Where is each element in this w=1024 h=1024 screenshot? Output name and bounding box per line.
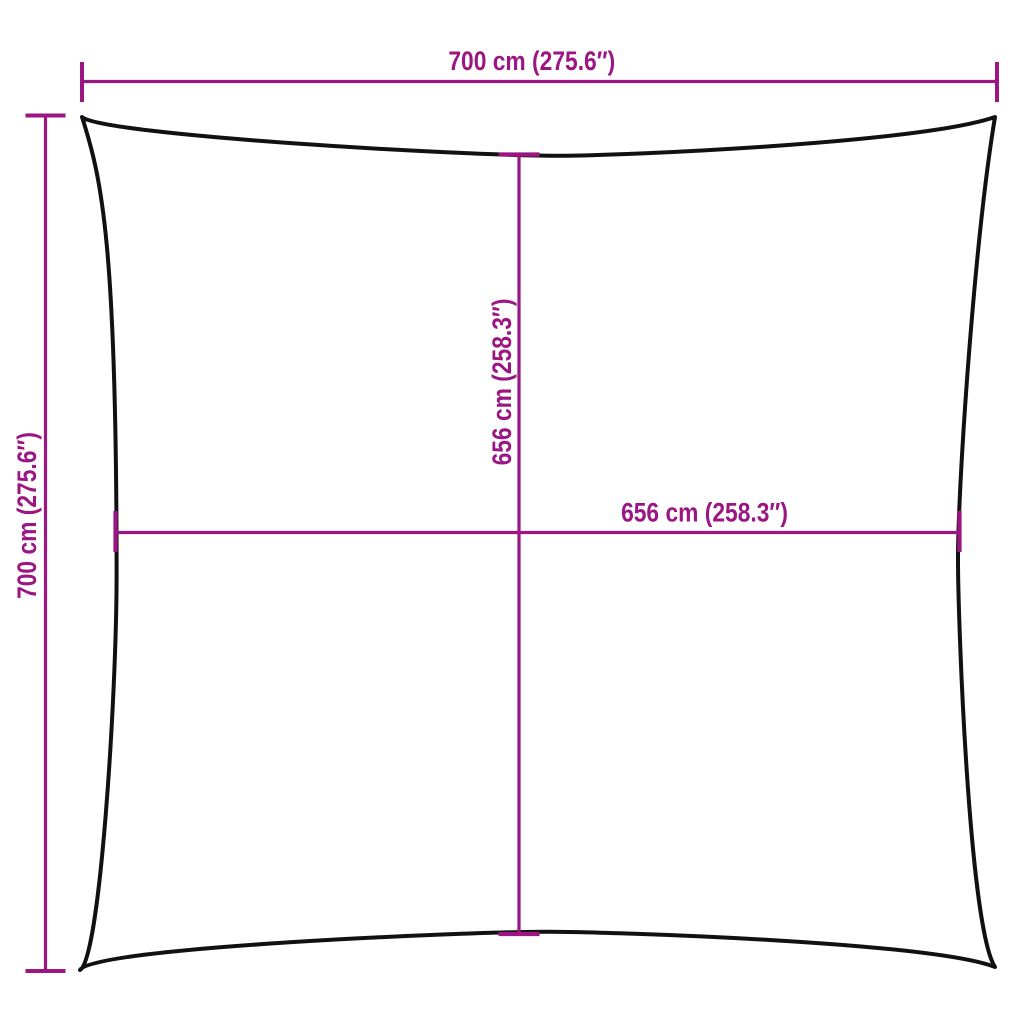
svg-text:700 cm (275.6″): 700 cm (275.6″) <box>12 432 42 599</box>
svg-text:700 cm (275.6″): 700 cm (275.6″) <box>448 46 615 76</box>
svg-text:656 cm (258.3″): 656 cm (258.3″) <box>621 498 788 528</box>
svg-text:656 cm (258.3″): 656 cm (258.3″) <box>487 299 517 466</box>
